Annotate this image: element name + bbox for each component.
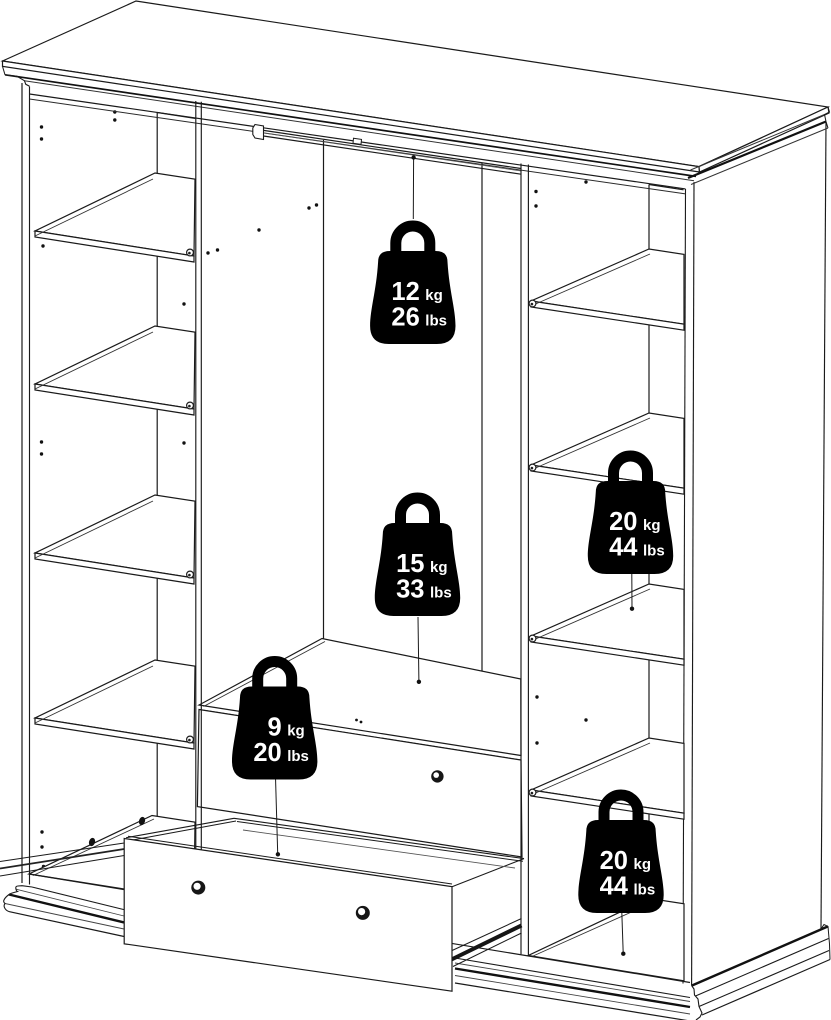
svg-text:9: 9 xyxy=(268,714,282,742)
svg-text:lbs: lbs xyxy=(425,313,447,330)
svg-text:kg: kg xyxy=(430,559,448,576)
svg-text:44: 44 xyxy=(600,873,629,901)
svg-text:lbs: lbs xyxy=(634,882,656,899)
svg-text:kg: kg xyxy=(634,856,652,873)
svg-text:12: 12 xyxy=(391,278,419,306)
svg-text:lbs: lbs xyxy=(643,543,665,560)
svg-text:44: 44 xyxy=(609,534,638,562)
svg-text:26: 26 xyxy=(391,304,419,332)
svg-text:33: 33 xyxy=(396,576,424,604)
svg-text:kg: kg xyxy=(287,723,305,740)
svg-text:kg: kg xyxy=(643,517,661,534)
svg-text:lbs: lbs xyxy=(430,585,452,602)
svg-text:kg: kg xyxy=(425,287,443,304)
svg-text:lbs: lbs xyxy=(287,748,309,765)
svg-text:20: 20 xyxy=(600,847,628,875)
svg-text:20: 20 xyxy=(253,739,281,767)
svg-text:20: 20 xyxy=(609,508,637,536)
svg-text:15: 15 xyxy=(396,550,424,578)
